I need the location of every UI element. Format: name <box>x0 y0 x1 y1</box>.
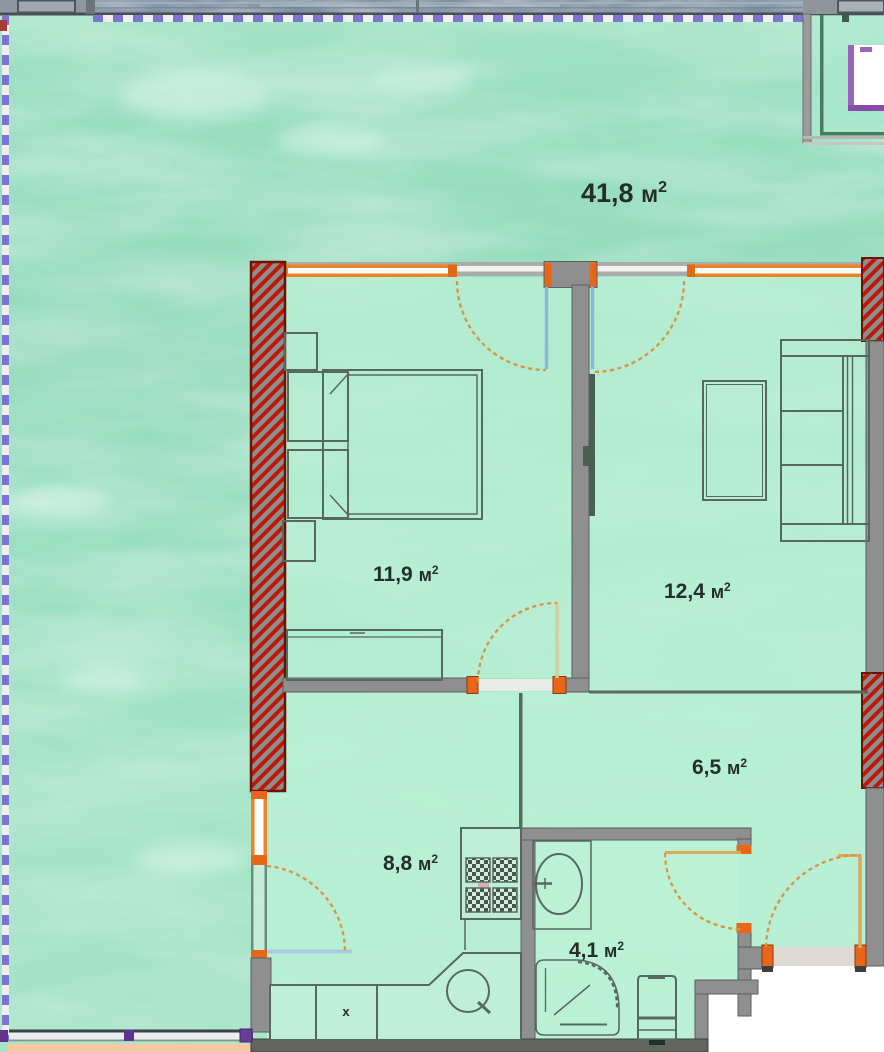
svg-text:x: x <box>342 1004 350 1019</box>
svg-text:12,4 м2: 12,4 м2 <box>664 580 731 603</box>
svg-text:41,8 м2: 41,8 м2 <box>581 178 667 208</box>
svg-text:8,8 м2: 8,8 м2 <box>383 852 438 875</box>
svg-text:4,1 м2: 4,1 м2 <box>569 939 624 962</box>
svg-text:6,5 м2: 6,5 м2 <box>692 756 747 779</box>
svg-text:11,9 м2: 11,9 м2 <box>373 563 439 586</box>
